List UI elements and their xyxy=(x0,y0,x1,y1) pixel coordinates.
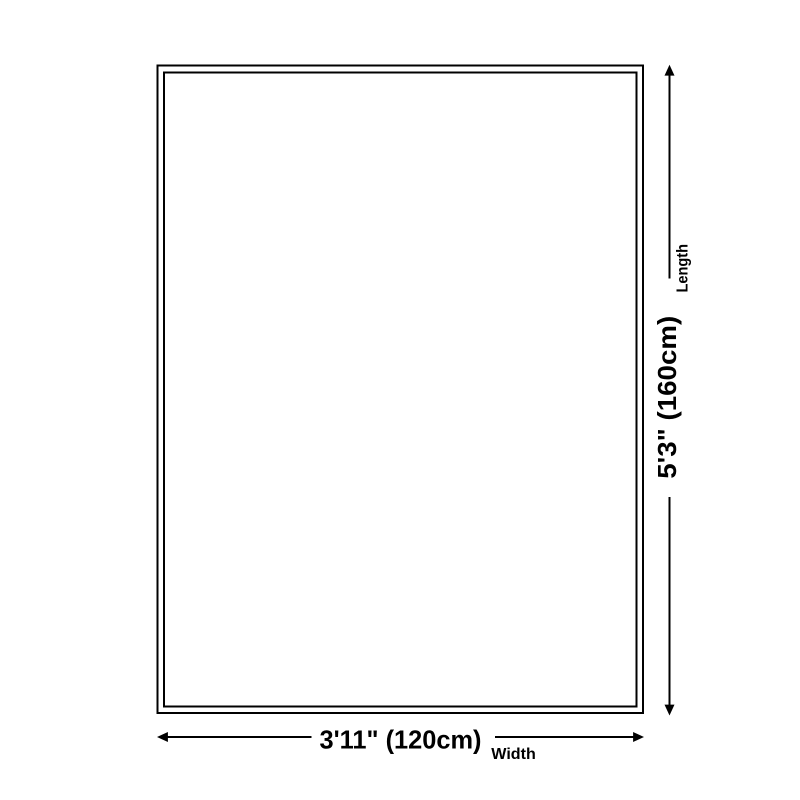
svg-text:Length: Length xyxy=(675,244,692,293)
svg-text:Width: Width xyxy=(491,746,536,763)
svg-text:5'3" (160cm): 5'3" (160cm) xyxy=(652,316,682,479)
svg-text:3'11" (120cm): 3'11" (120cm) xyxy=(320,724,482,754)
